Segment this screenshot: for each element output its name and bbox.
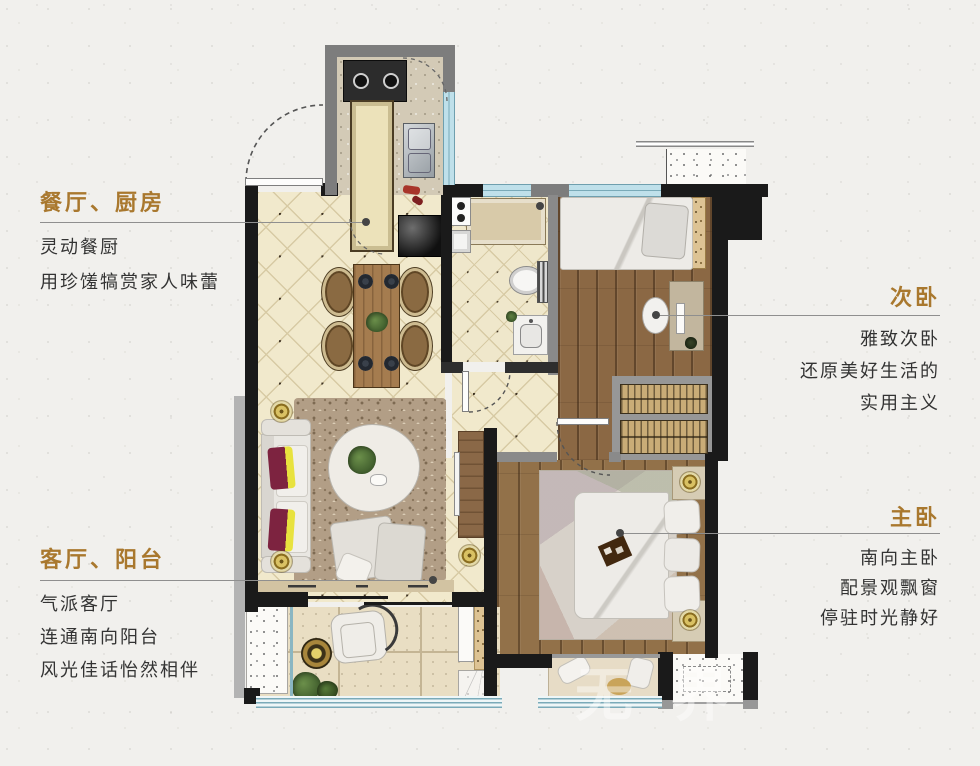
leader-second-bedroom xyxy=(656,315,940,316)
ac-platform-top xyxy=(666,149,746,187)
bathroom-door xyxy=(462,371,469,412)
burner-icon xyxy=(383,73,399,89)
wall-right xyxy=(712,184,728,461)
wall-kitchen-left xyxy=(325,45,337,195)
balcony-blind xyxy=(458,606,474,662)
leader-dot xyxy=(616,529,624,537)
wall-left xyxy=(245,183,258,612)
vanity-basin xyxy=(520,324,542,348)
tv xyxy=(454,452,460,516)
kitchen-sink xyxy=(403,123,435,178)
label-second-bedroom-text: 雅致次卧 还原美好生活的 实用主义 xyxy=(800,323,940,419)
master-pillow xyxy=(663,499,701,535)
sofa-pillow xyxy=(267,446,296,490)
bay-window-mark xyxy=(683,666,731,692)
dining-chair xyxy=(322,322,356,370)
sofa-armrest xyxy=(261,419,311,436)
balcony-sill xyxy=(258,580,454,592)
ac-platform-rail xyxy=(636,141,754,147)
text-line: 还原美好生活的 xyxy=(800,355,940,387)
sliding-door-rail xyxy=(364,602,452,605)
second-bedroom-desk xyxy=(669,281,704,351)
dining-chair xyxy=(398,268,432,316)
text-line: 灵动餐厨 xyxy=(40,230,220,265)
wall-bathroom-bottom xyxy=(505,362,558,373)
water-heater xyxy=(450,197,471,226)
shower-area xyxy=(466,198,546,245)
wall-master-right xyxy=(705,452,718,658)
shower-head-icon xyxy=(536,202,544,210)
stove xyxy=(343,60,407,102)
knob-icon xyxy=(457,214,465,222)
text-line: 南向主卧 xyxy=(820,543,940,573)
master-pillow xyxy=(663,537,700,572)
second-bedroom-window xyxy=(569,184,661,197)
kitchen-island-counter xyxy=(350,100,394,252)
second-bed-pillow xyxy=(641,202,690,260)
second-bed-headboard xyxy=(692,197,706,269)
text-line: 雅致次卧 xyxy=(800,323,940,355)
label-living-balcony-text: 气派客厅 连通南向阳台 风光佳话怡然相伴 xyxy=(40,588,200,687)
floor-lamp-icon xyxy=(271,401,292,422)
ac-platform-left xyxy=(246,604,288,694)
wall-bathroom-left xyxy=(441,195,452,372)
master-door xyxy=(557,418,609,425)
bay-window-box xyxy=(673,654,743,704)
leader-dot xyxy=(652,311,660,319)
label-living-balcony-title: 客厅、阳台 xyxy=(40,547,165,573)
plate-icon xyxy=(384,356,399,371)
text-line: 实用主义 xyxy=(800,387,940,419)
outer-wall-strip xyxy=(234,396,245,698)
bay-window-glass xyxy=(538,696,662,708)
text-line: 配景观飘窗 xyxy=(820,573,940,603)
bathroom-plant-icon xyxy=(506,311,517,322)
coffee-table-plant-icon xyxy=(348,446,376,474)
wall-master-top xyxy=(497,452,557,462)
lamp-icon xyxy=(680,472,700,492)
leader-master-bedroom xyxy=(620,533,940,534)
knob-icon xyxy=(457,202,465,210)
utility-sink xyxy=(450,230,471,253)
text-line: 连通南向阳台 xyxy=(40,621,200,654)
plate-icon xyxy=(358,356,373,371)
wardrobe xyxy=(620,384,708,414)
leader-living-balcony xyxy=(40,580,433,581)
text-line: 气派客厅 xyxy=(40,588,200,621)
desk-item xyxy=(676,303,685,334)
wall-balcony-right xyxy=(452,592,484,607)
floor-lamp-icon xyxy=(459,545,480,566)
master-pillow xyxy=(663,575,700,612)
bay-window-sill xyxy=(552,654,660,658)
dining-chair xyxy=(398,322,432,370)
entry-door xyxy=(245,178,323,186)
balcony-side-glass xyxy=(290,607,293,697)
wall-master-bottom xyxy=(495,654,552,668)
wall-balcony-left xyxy=(246,592,308,607)
floor-lamp-icon xyxy=(271,551,292,572)
lamp-icon xyxy=(680,610,700,630)
kitchen-mat xyxy=(398,215,442,257)
wardrobe xyxy=(620,420,708,454)
kitchen-window xyxy=(443,92,455,185)
coffee-table-dish xyxy=(370,474,387,486)
plate-icon xyxy=(358,274,373,289)
burner-icon xyxy=(353,73,369,89)
label-master-bedroom-title: 主卧 xyxy=(890,505,940,531)
label-dining-kitchen-text: 灵动餐厨 用珍馐犒赏家人味蕾 xyxy=(40,230,220,300)
table-plant-icon xyxy=(366,312,388,332)
desk-plant-icon xyxy=(685,337,697,349)
leader-dot xyxy=(429,576,437,584)
leader-dining-kitchen xyxy=(40,222,366,223)
faucet-icon xyxy=(529,319,533,323)
tray-item xyxy=(615,546,624,554)
tray-item xyxy=(603,547,612,555)
plate-icon xyxy=(384,274,399,289)
text-line: 用珍馐犒赏家人味蕾 xyxy=(40,265,220,300)
wall-bathroom-bottom xyxy=(441,362,463,373)
bay-cushion xyxy=(607,678,631,695)
bathroom-window xyxy=(483,184,531,197)
lounge-chair xyxy=(330,609,389,664)
sink-basin xyxy=(408,153,431,173)
balcony-window xyxy=(256,696,502,708)
label-second-bedroom-title: 次卧 xyxy=(890,285,940,311)
bathroom-vanity xyxy=(513,315,548,355)
text-line: 风光佳话怡然相伴 xyxy=(40,654,200,687)
label-dining-kitchen-title: 餐厅、厨房 xyxy=(40,190,165,216)
entry-door-arc xyxy=(246,105,323,182)
bay-window-wall xyxy=(743,652,758,706)
ottoman xyxy=(374,522,427,584)
side-table xyxy=(301,638,332,669)
dining-chair xyxy=(322,268,356,316)
wall-bathroom-right xyxy=(548,195,558,375)
text-line: 停驻时光静好 xyxy=(820,603,940,633)
tv-cabinet xyxy=(458,431,484,538)
sofa-pillow xyxy=(268,508,296,552)
floor-plan-page: 餐厅、厨房 灵动餐厨 用珍馐犒赏家人味蕾 客厅、阳台 气派客厅 连通南向阳台 风… xyxy=(0,0,980,766)
leader-dot xyxy=(362,218,370,226)
sink-basin xyxy=(408,128,431,150)
sliding-door-rail xyxy=(308,596,388,599)
label-master-bedroom-text: 南向主卧 配景观飘窗 停驻时光静好 xyxy=(820,543,940,633)
wall-kitchen-right xyxy=(443,45,455,95)
bay-window-foot xyxy=(743,700,758,709)
wall-kitchen-top xyxy=(325,45,455,57)
